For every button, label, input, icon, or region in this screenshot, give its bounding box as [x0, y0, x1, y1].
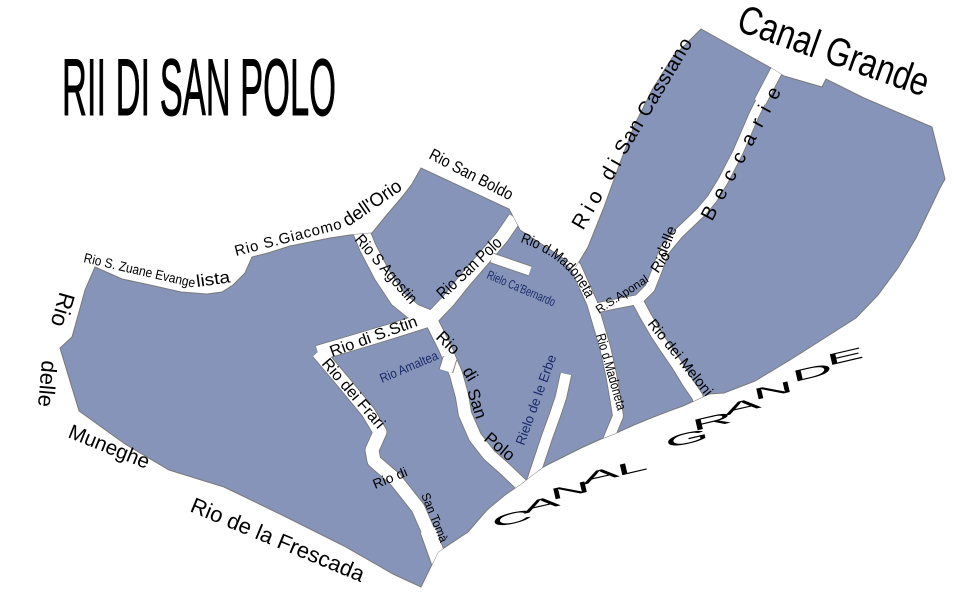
svg-text:N: N: [751, 377, 795, 404]
svg-text:lista: lista: [195, 267, 232, 291]
svg-text:RII DI SAN POLO: RII DI SAN POLO: [62, 43, 336, 133]
svg-text:L: L: [615, 455, 650, 479]
svg-text:Rio: Rio: [46, 290, 81, 330]
svg-text:delle: delle: [33, 360, 62, 408]
svg-text:E: E: [824, 343, 865, 369]
